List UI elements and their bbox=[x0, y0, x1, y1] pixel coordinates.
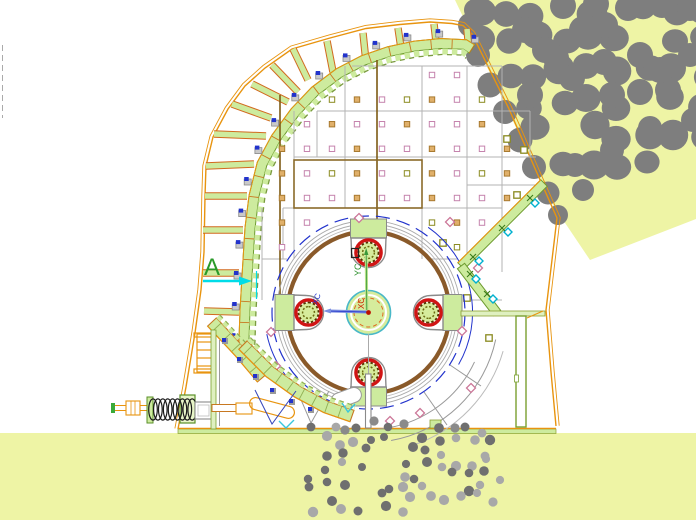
svg-text:A: A bbox=[204, 254, 220, 281]
svg-text:XC: XC bbox=[357, 298, 366, 309]
svg-text:YC: YC bbox=[353, 263, 363, 276]
